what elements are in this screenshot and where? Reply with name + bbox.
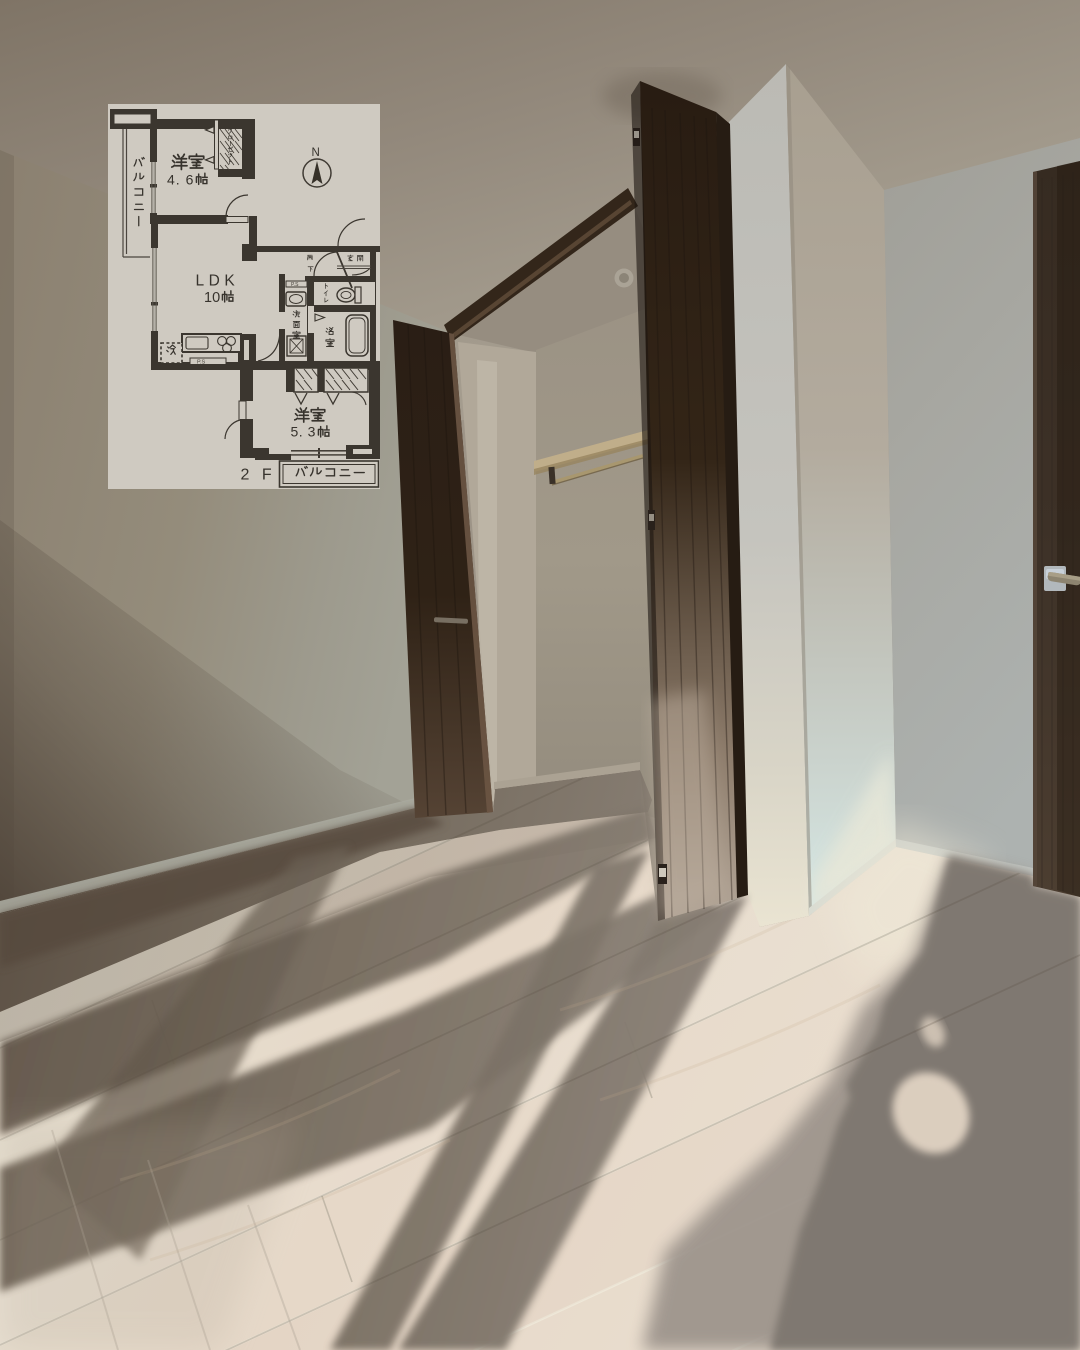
svg-text:2 F: 2 F [241, 467, 276, 484]
svg-text:10: 10 [204, 290, 220, 306]
svg-text:4. 6: 4. 6 [167, 172, 194, 188]
svg-text:P.S: P.S [291, 282, 299, 288]
svg-text:P.S: P.S [197, 360, 205, 366]
svg-text:LDK: LDK [196, 273, 240, 290]
svg-text:5. 3: 5. 3 [291, 423, 316, 439]
svg-text:N: N [312, 147, 320, 159]
